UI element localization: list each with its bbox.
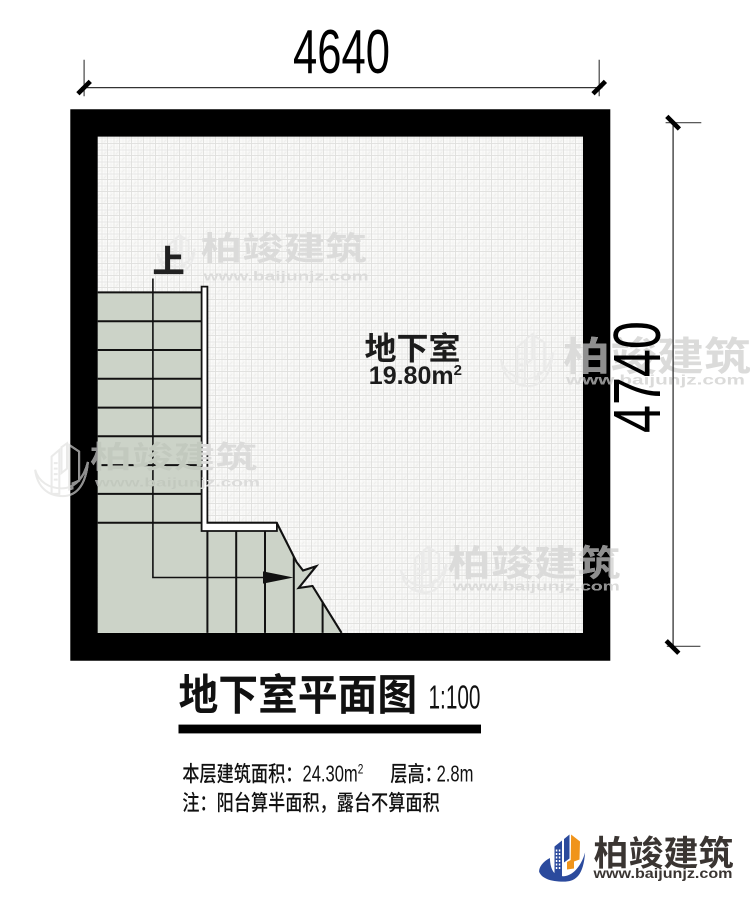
svg-text:www.baijunjz.com: www.baijunjz.com xyxy=(202,269,368,284)
svg-text:4740: 4740 xyxy=(599,321,675,433)
svg-text:4640: 4640 xyxy=(293,17,390,86)
svg-text:19.80m2: 19.80m2 xyxy=(369,362,462,390)
svg-text:2.8m: 2.8m xyxy=(437,762,474,787)
svg-text:1:100: 1:100 xyxy=(429,678,481,715)
svg-text:www.baijunjz.com: www.baijunjz.com xyxy=(592,866,732,881)
svg-text:24.30m2: 24.30m2 xyxy=(303,761,364,787)
